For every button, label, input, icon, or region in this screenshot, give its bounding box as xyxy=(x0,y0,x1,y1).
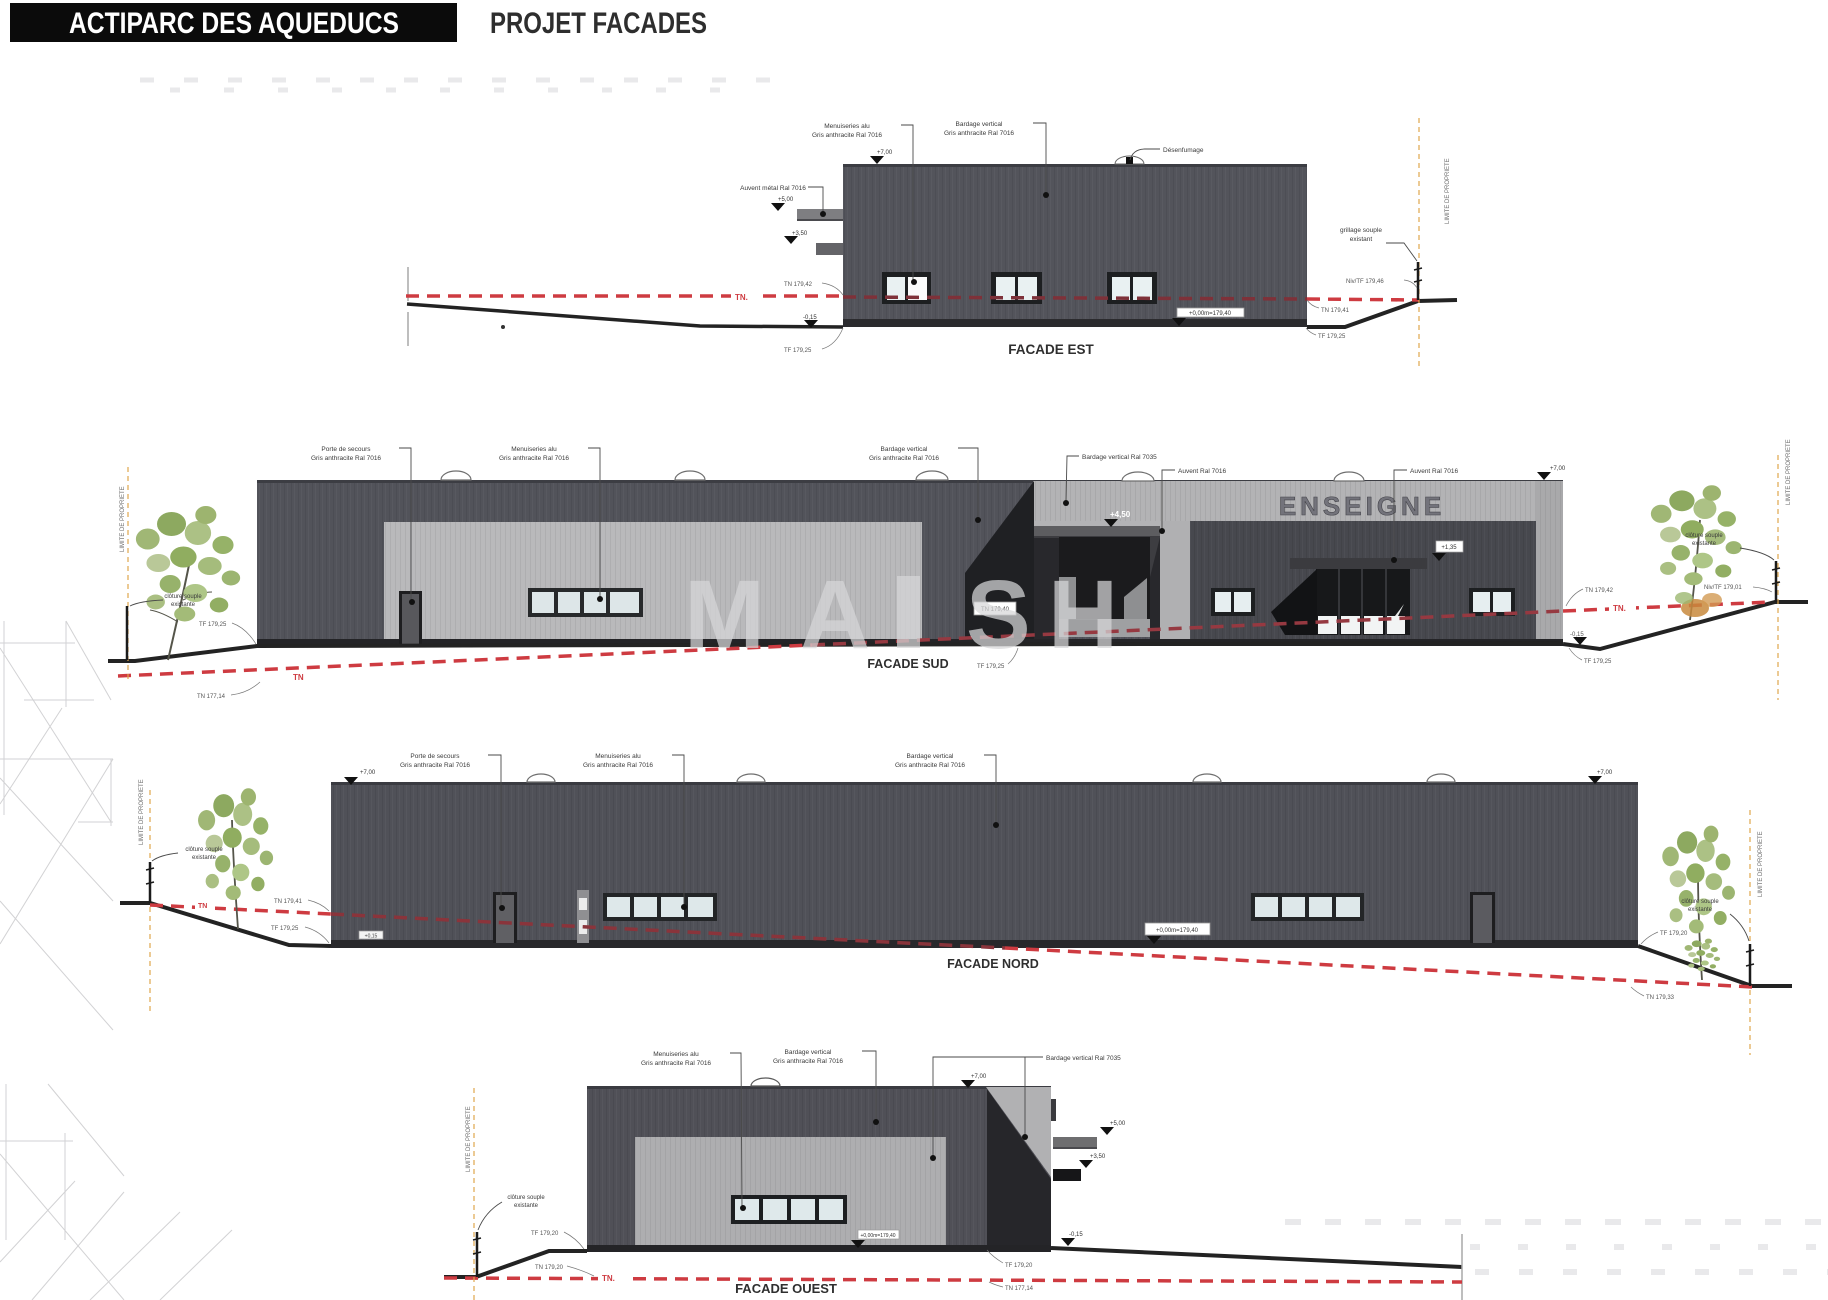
svg-text:TF 179,25: TF 179,25 xyxy=(784,348,812,354)
svg-text:Menuiseries alu: Menuiseries alu xyxy=(511,446,557,453)
svg-text:Gris anthracite Ral 7016: Gris anthracite Ral 7016 xyxy=(641,1060,711,1067)
svg-text:ENSEIGNE: ENSEIGNE xyxy=(1279,491,1445,521)
svg-text:TN 179,33: TN 179,33 xyxy=(1646,995,1675,1001)
svg-text:TN 179,41: TN 179,41 xyxy=(1321,308,1350,314)
svg-text:Bardage vertical: Bardage vertical xyxy=(881,446,929,453)
svg-text:Gris anthracite Ral 7016: Gris anthracite Ral 7016 xyxy=(895,762,965,769)
svg-text:LIMITE DE PROPRIETE: LIMITE DE PROPRIETE xyxy=(1758,831,1764,897)
svg-text:existante: existante xyxy=(171,602,196,608)
svg-text:+0,00m=179,40: +0,00m=179,40 xyxy=(1189,311,1232,317)
svg-text:LIMITE DE PROPRIETE: LIMITE DE PROPRIETE xyxy=(1445,158,1451,224)
svg-text:Bardage vertical: Bardage vertical xyxy=(956,121,1004,128)
svg-text:LIMITE DE PROPRIETE: LIMITE DE PROPRIETE xyxy=(466,1106,472,1172)
svg-text:Auvent métal Ral 7016: Auvent métal Ral 7016 xyxy=(740,185,806,192)
svg-text:+7,00: +7,00 xyxy=(877,150,893,156)
svg-text:clôture souple: clôture souple xyxy=(507,1195,545,1201)
svg-text:Gris anthracite Ral 7016: Gris anthracite Ral 7016 xyxy=(812,132,882,139)
svg-text:TN 177,14: TN 177,14 xyxy=(197,694,226,700)
svg-text:TF 179,25: TF 179,25 xyxy=(1584,659,1612,665)
svg-text:Bardage vertical: Bardage vertical xyxy=(907,753,955,760)
svg-text:Gris anthracite Ral 7016: Gris anthracite Ral 7016 xyxy=(944,130,1014,137)
svg-text:Gris anthracite Ral 7016: Gris anthracite Ral 7016 xyxy=(869,455,939,462)
svg-text:existante: existante xyxy=(192,855,217,861)
svg-text:existante: existante xyxy=(1692,541,1717,547)
svg-text:Gris anthracite Ral 7016: Gris anthracite Ral 7016 xyxy=(400,762,470,769)
svg-text:Niv/TF 179,46: Niv/TF 179,46 xyxy=(1346,279,1384,285)
svg-text:TF 179,20: TF 179,20 xyxy=(1660,931,1688,937)
svg-text:+7,00: +7,00 xyxy=(971,1074,987,1080)
svg-text:FACADE OUEST: FACADE OUEST xyxy=(735,1281,837,1296)
svg-text:TN: TN xyxy=(293,673,304,682)
svg-text:LIMITE DE PROPRIETE: LIMITE DE PROPRIETE xyxy=(1786,439,1792,505)
svg-text:Gris anthracite Ral 7016: Gris anthracite Ral 7016 xyxy=(773,1058,843,1065)
svg-text:TN 179,41: TN 179,41 xyxy=(274,899,303,905)
svg-text:Auvent Ral 7016: Auvent Ral 7016 xyxy=(1410,468,1458,475)
svg-text:TF 179,20: TF 179,20 xyxy=(531,1231,559,1237)
svg-text:FACADE NORD: FACADE NORD xyxy=(947,957,1039,971)
svg-text:PROJET FACADES: PROJET FACADES xyxy=(490,7,707,40)
svg-text:S: S xyxy=(966,560,1031,669)
svg-text:M: M xyxy=(684,560,765,669)
svg-text:Porte de secours: Porte de secours xyxy=(410,753,460,760)
svg-text:existante: existante xyxy=(514,1203,539,1209)
svg-text:clôture souple: clôture souple xyxy=(1681,899,1719,905)
svg-text:H: H xyxy=(1048,560,1118,669)
svg-text:TN.: TN. xyxy=(735,293,748,302)
svg-text:TN 179,42: TN 179,42 xyxy=(1585,588,1614,594)
svg-text:Désenfumage: Désenfumage xyxy=(1163,147,1204,154)
svg-text:TN.: TN. xyxy=(602,1274,615,1283)
svg-text:clôture souple: clôture souple xyxy=(185,847,223,853)
svg-text:+5,00: +5,00 xyxy=(1110,1121,1126,1127)
svg-text:+3,50: +3,50 xyxy=(1090,1154,1106,1160)
svg-text:Porte de secours: Porte de secours xyxy=(321,446,371,453)
svg-text:Bardage vertical: Bardage vertical xyxy=(785,1049,833,1056)
svg-text:TN 179,20: TN 179,20 xyxy=(535,1265,564,1271)
svg-text:TN 179,42: TN 179,42 xyxy=(784,282,813,288)
svg-text:TN.: TN. xyxy=(1613,604,1626,613)
svg-text:+7,00: +7,00 xyxy=(360,770,376,776)
svg-text:FACADE SUD: FACADE SUD xyxy=(867,657,948,671)
svg-text:TF 179,25: TF 179,25 xyxy=(271,926,299,932)
svg-text:Niv/TF 179,01: Niv/TF 179,01 xyxy=(1704,585,1742,591)
svg-text:TF 179,20: TF 179,20 xyxy=(1005,1263,1033,1269)
svg-text:Menuiseries alu: Menuiseries alu xyxy=(824,123,870,130)
svg-text:FACADE EST: FACADE EST xyxy=(1008,342,1094,357)
svg-text:Gris anthracite Ral 7016: Gris anthracite Ral 7016 xyxy=(583,762,653,769)
svg-text:Gris anthracite Ral 7016: Gris anthracite Ral 7016 xyxy=(499,455,569,462)
svg-text:+0,00m=179,40: +0,00m=179,40 xyxy=(1156,928,1199,934)
svg-text:TN 177,14: TN 177,14 xyxy=(1005,1286,1034,1292)
svg-text:+5,00: +5,00 xyxy=(778,197,794,203)
svg-text:-0,15: -0,15 xyxy=(1069,1232,1083,1238)
svg-text:+4,50: +4,50 xyxy=(1110,510,1131,519)
svg-text:TF 179,25: TF 179,25 xyxy=(199,622,227,628)
svg-text:Menuiseries alu: Menuiseries alu xyxy=(595,753,641,760)
svg-text:+7,00: +7,00 xyxy=(1550,466,1566,472)
svg-text:ACTIPARC DES AQUEDUCS: ACTIPARC DES AQUEDUCS xyxy=(69,7,399,40)
svg-text:Menuiseries alu: Menuiseries alu xyxy=(653,1051,699,1058)
svg-text:TN: TN xyxy=(198,903,207,910)
svg-text:grillage souple: grillage souple xyxy=(1340,227,1382,234)
svg-text:Bardage vertical Ral 7035: Bardage vertical Ral 7035 xyxy=(1082,454,1157,461)
svg-text:clôture souple: clôture souple xyxy=(1685,533,1723,539)
svg-text:LIMITE DE PROPRIETE: LIMITE DE PROPRIETE xyxy=(120,486,126,552)
svg-text:Auvent Ral 7016: Auvent Ral 7016 xyxy=(1178,468,1226,475)
svg-text:clôture souple: clôture souple xyxy=(164,594,202,600)
svg-text:+0,00m=179,40: +0,00m=179,40 xyxy=(860,1233,895,1239)
svg-text:LIMITE DE PROPRIETE: LIMITE DE PROPRIETE xyxy=(139,779,145,845)
svg-text:+1,35: +1,35 xyxy=(1441,545,1457,551)
svg-text:Gris anthracite Ral 7016: Gris anthracite Ral 7016 xyxy=(311,455,381,462)
svg-text:existante: existante xyxy=(1688,907,1713,913)
svg-text:A: A xyxy=(800,560,870,669)
svg-text:+0,15: +0,15 xyxy=(365,934,378,940)
svg-text:existant: existant xyxy=(1350,236,1373,243)
svg-text:Bardage vertical Ral 7035: Bardage vertical Ral 7035 xyxy=(1046,1055,1121,1062)
svg-text:+7,00: +7,00 xyxy=(1597,770,1613,776)
svg-text:TF 179,25: TF 179,25 xyxy=(1318,334,1346,340)
